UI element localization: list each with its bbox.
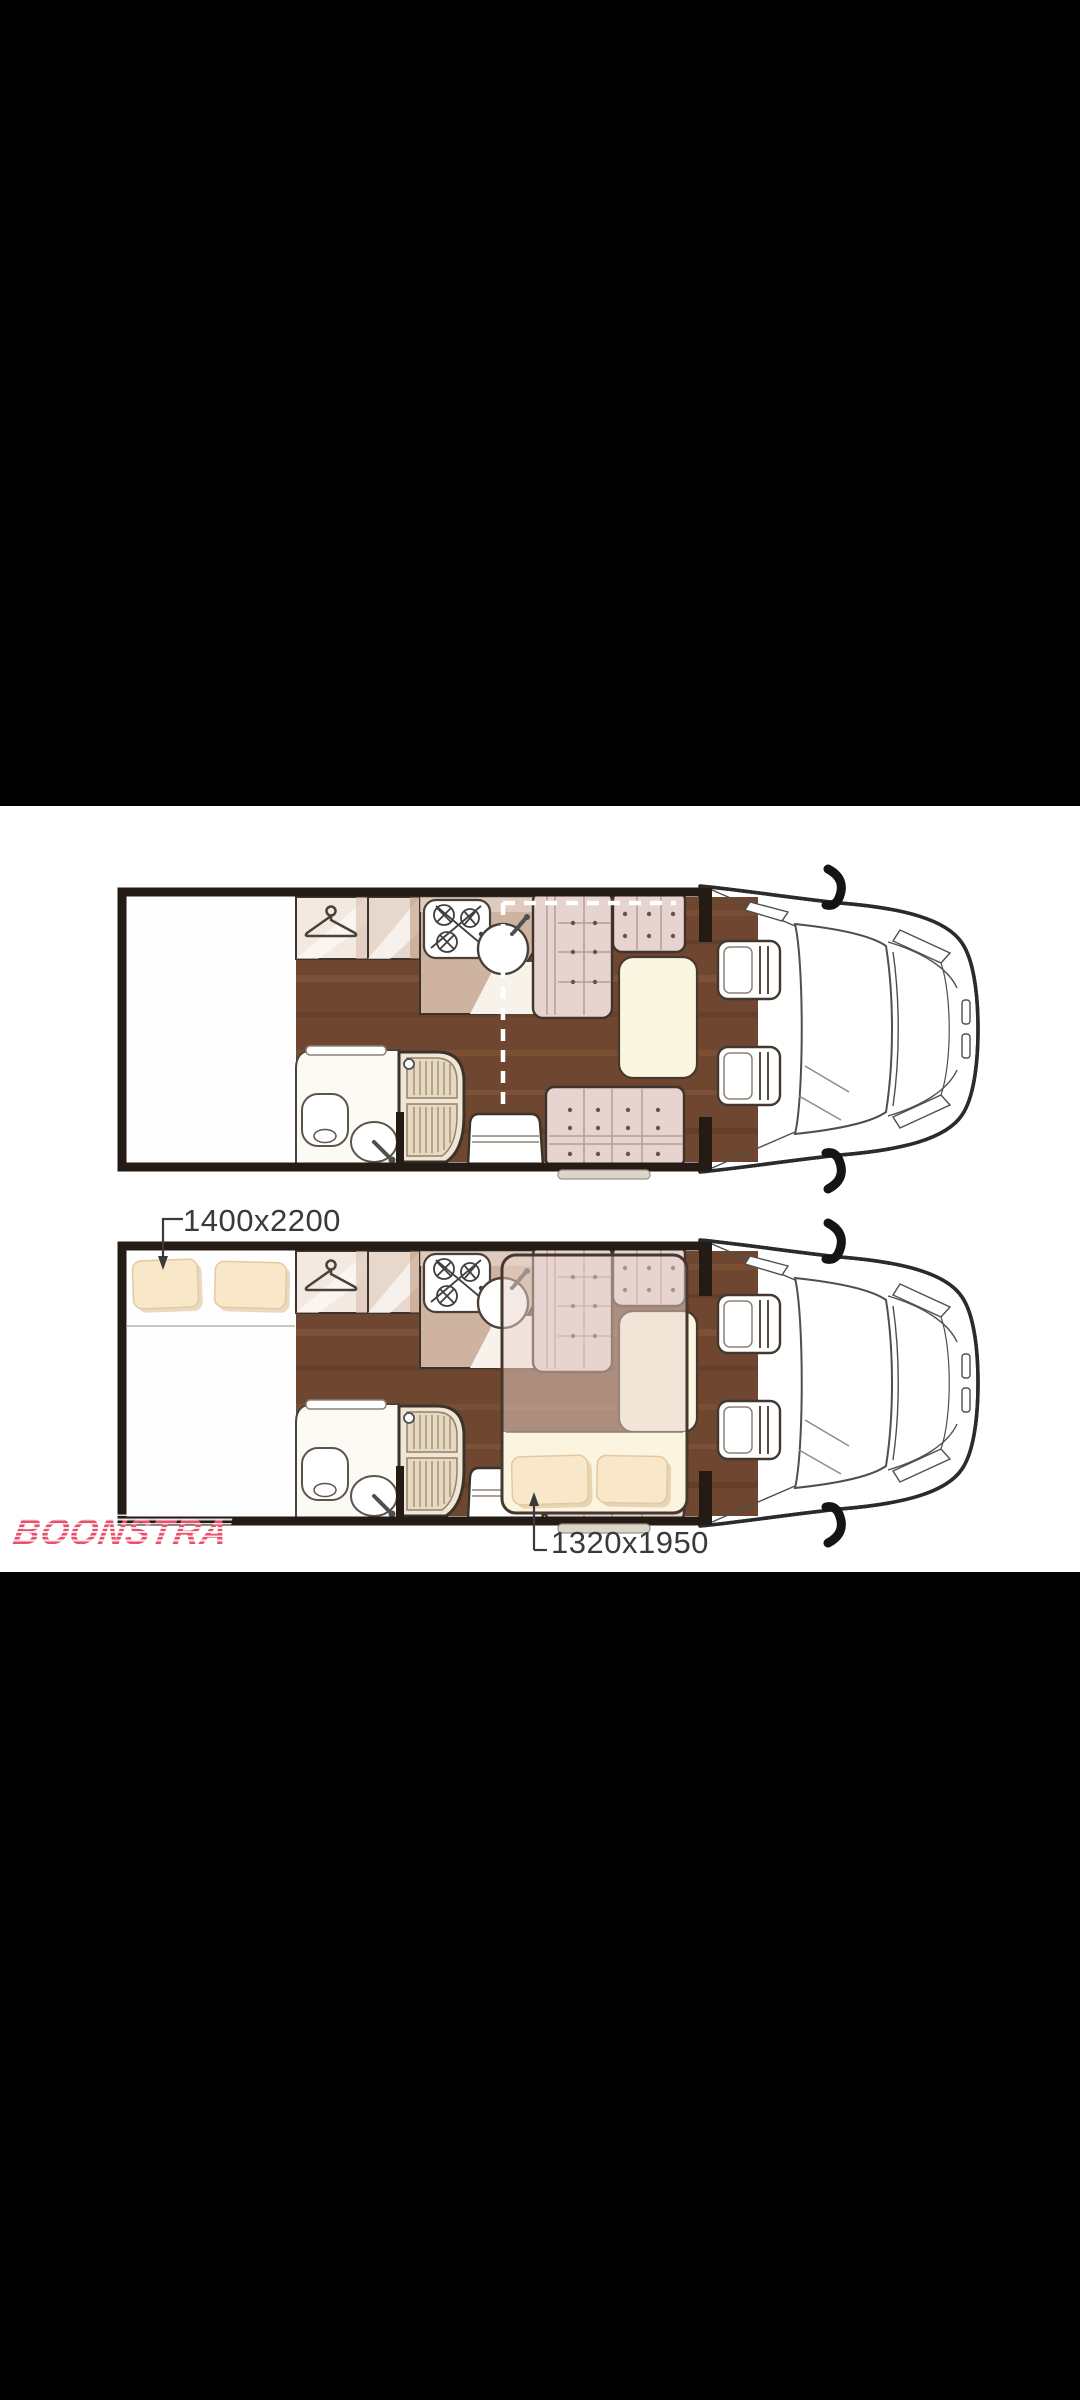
rear-bed-pillow-left [132, 1259, 203, 1313]
boonstra-watermark-text: BOONSTRA [10, 1511, 231, 1552]
boonstra-watermark: BOONSTRA [11, 1514, 231, 1550]
drop-down-bed-dimension-label: 1320x1950 [551, 1526, 709, 1560]
floorplan-sleeping-mode [110, 1204, 990, 1574]
drop-bed-pillow-right [597, 1455, 672, 1507]
drop-down-bed-lowered [502, 1255, 687, 1513]
rear-bed-dimension-label: 1400x2200 [183, 1204, 341, 1238]
drop-bed-pillow-left [511, 1455, 592, 1509]
floorplan-travel-mode [110, 850, 990, 1220]
rear-bed-pillow-right [214, 1261, 290, 1313]
